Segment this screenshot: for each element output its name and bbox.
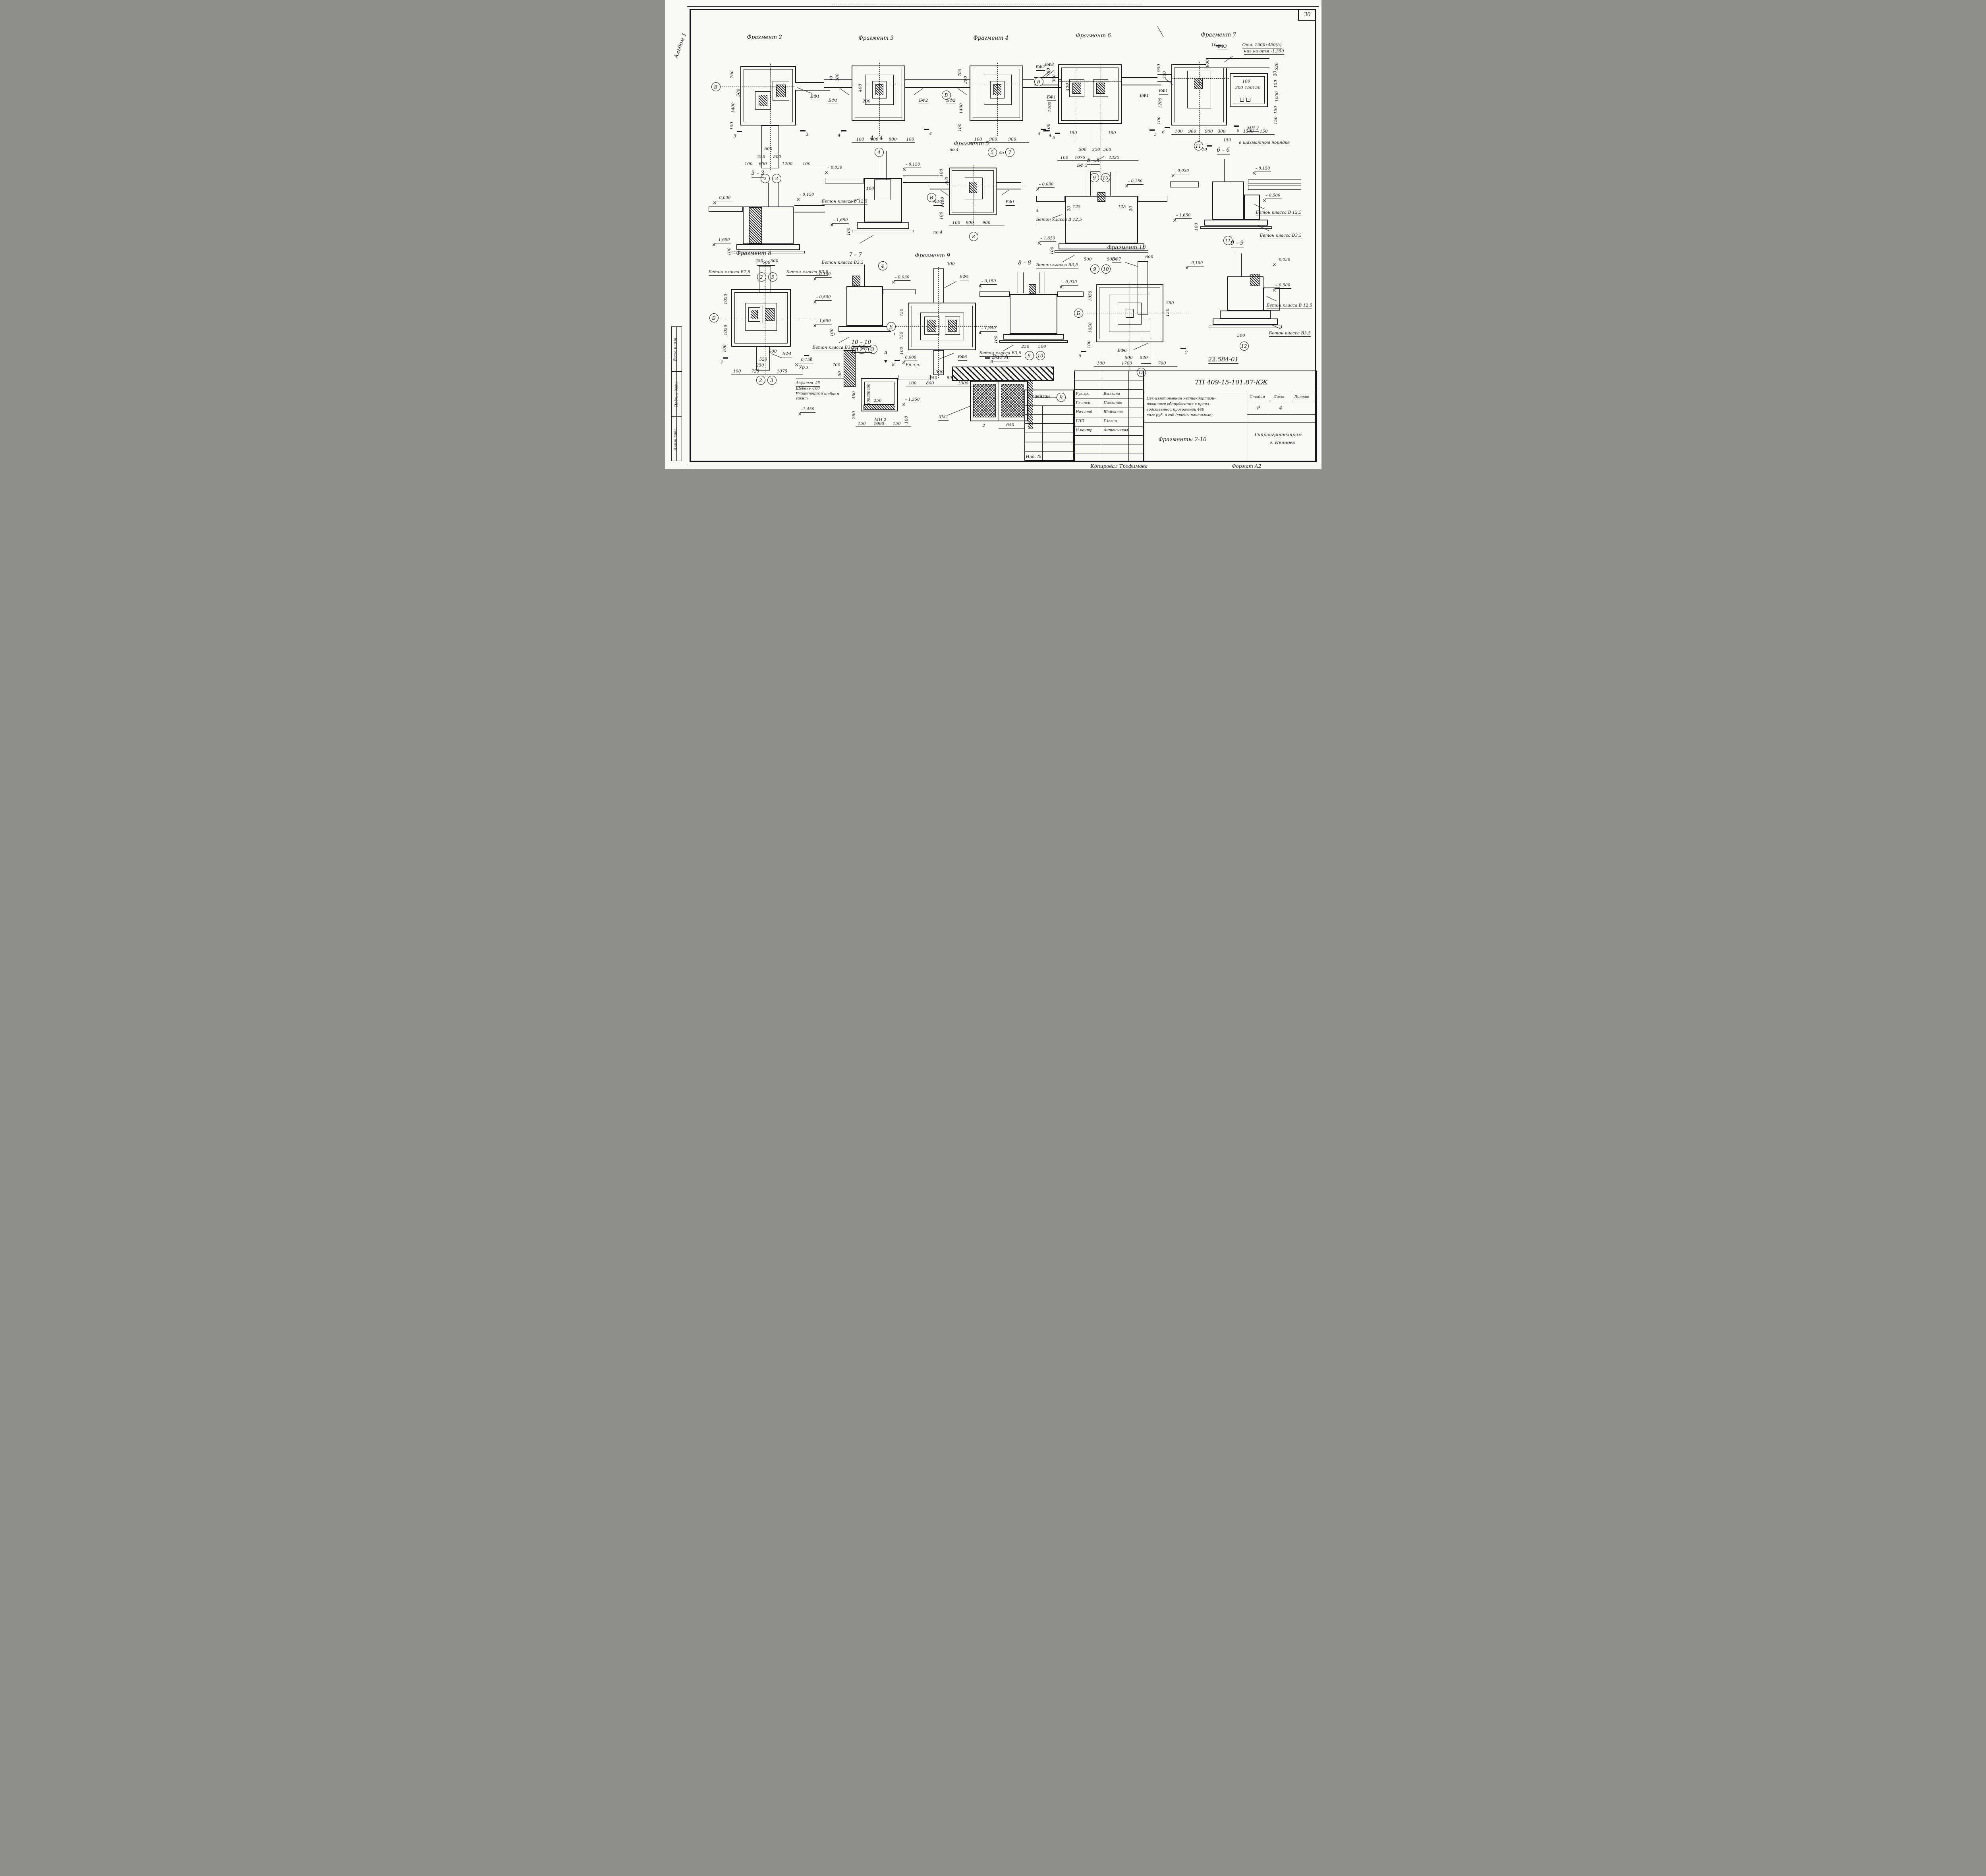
anchor-bolt	[1116, 172, 1116, 196]
cut-mark	[1055, 133, 1060, 134]
dim-label: 800	[926, 381, 934, 386]
element-label: БФ4	[782, 352, 792, 357]
dim-label: 1050	[1088, 291, 1093, 301]
element-label: БФ2	[947, 98, 956, 104]
dim-label: 1400	[941, 197, 945, 208]
fragment-title: Фрагмент 3	[859, 36, 894, 41]
dim-label: 1400	[959, 103, 964, 114]
leader-line	[771, 353, 781, 358]
grid-bubble: В	[711, 82, 721, 91]
grid-bubble: 2	[756, 376, 765, 385]
column-pocket	[1187, 71, 1211, 108]
dim-line	[757, 265, 775, 266]
dim-label: 1050	[1088, 322, 1093, 333]
fragment-title: Фрагмент 8	[736, 251, 771, 257]
dim-label: 20	[1067, 206, 1071, 211]
cut-label: 6	[1237, 129, 1240, 133]
dim-label: 500	[736, 89, 740, 97]
dim-label: 125	[1118, 205, 1126, 209]
dim-label: 500	[1038, 345, 1046, 349]
anchor-bolt	[1018, 272, 1018, 293]
wall-hatch	[749, 207, 762, 243]
elevation-mark: – 0,150	[1254, 167, 1271, 172]
signature-name: Шайхалов	[1104, 410, 1123, 415]
cut-mark	[1165, 127, 1170, 128]
dim-label: 250	[1166, 301, 1174, 305]
sheet-title: Фрагменты 2-10	[1159, 437, 1207, 443]
mesh-panel	[973, 384, 996, 417]
dim-label: 100	[803, 162, 811, 166]
drawing-sheet: 30 Альбом 1 Взам. инв.№ Подп. и дата Инв…	[665, 0, 1321, 469]
anchor-bolt	[1236, 253, 1236, 276]
signature-divider	[1128, 371, 1129, 462]
column-hatch	[751, 310, 758, 319]
element-label: БФ2	[919, 98, 928, 104]
fragment-5-view: Фрагмент 5 В БФ2 БФ1 100 300 1400 100 10…	[927, 140, 1028, 245]
floor-slab	[1248, 179, 1301, 183]
dim-line	[949, 226, 1005, 226]
dim-label: 100	[730, 122, 734, 130]
dim-label: 725	[752, 369, 759, 374]
cut-mark	[894, 360, 900, 361]
cut-mark	[737, 131, 742, 132]
dim-label: 100	[846, 228, 851, 235]
side-stamp-label: Взам. инв.№	[673, 338, 678, 361]
cut-label: 6	[1162, 130, 1165, 135]
view-arrow-line	[886, 355, 886, 360]
anchor-bolt	[1085, 172, 1085, 196]
pedestal	[846, 286, 883, 326]
dim-label: 300	[867, 391, 871, 398]
cut-label: 3	[806, 133, 809, 137]
elevation-mark: – 1,650	[1039, 237, 1057, 242]
cut-label: 4	[1036, 209, 1039, 213]
dim-line	[1094, 366, 1177, 367]
signature-rows	[1075, 371, 1143, 461]
element-label: БФ1	[1159, 89, 1168, 95]
elevation-mark: – 1,650	[714, 238, 731, 243]
dim-label: 150	[1069, 131, 1077, 135]
dim-label: 1000	[874, 422, 885, 426]
dim-label: 150	[1108, 131, 1116, 135]
view-title: Вид А	[992, 355, 1009, 361]
cut-mark	[841, 130, 846, 131]
dim-label: 700	[1046, 68, 1051, 76]
floor-slab	[1248, 185, 1301, 190]
cut-mark	[1234, 125, 1239, 127]
signature-name: Павлинов	[1104, 401, 1122, 405]
dim-label: 300	[947, 262, 955, 266]
title-block-line	[1293, 393, 1293, 414]
dim-label: 1700	[1122, 361, 1132, 366]
dim-label: 100	[866, 187, 874, 191]
grid-bubble: 12	[1240, 342, 1249, 351]
dim-line	[856, 427, 911, 427]
format-label: Формат А2	[1232, 464, 1262, 469]
elevation-mark: –1,450	[800, 407, 816, 413]
floor-slab	[1036, 196, 1065, 202]
dim-label: 100	[1046, 124, 1051, 131]
dim-label: 100	[939, 212, 943, 220]
section-title: 10 – 10	[852, 340, 871, 347]
leader-line	[1157, 26, 1163, 37]
stage-value: Р	[1257, 405, 1260, 410]
dim-label: 100	[909, 381, 917, 386]
dim-line	[1171, 134, 1275, 135]
layer-label: Щебень -100	[796, 387, 820, 392]
fragment-title: Фрагмент 4	[974, 36, 1008, 41]
signature-name: Глезин	[1104, 419, 1117, 424]
cut-mark	[1081, 351, 1086, 352]
bedding-layer	[835, 333, 895, 335]
dim-label: 300	[1052, 74, 1056, 82]
column-hatch	[875, 84, 883, 95]
material-label: Бетон класса В3,5	[1269, 331, 1311, 337]
title-block-line	[1144, 422, 1317, 423]
dim-label: 1400	[731, 102, 736, 113]
dim-label: 100	[745, 162, 753, 166]
section-title: 5 – 5	[1087, 158, 1100, 165]
elevation-mark: – 0,500	[815, 295, 832, 301]
dim-label: 100	[904, 416, 908, 424]
pedestal-step	[1244, 195, 1260, 220]
ground-line	[796, 378, 844, 378]
section-title: 3 – 3	[752, 171, 765, 178]
bedding-layer	[852, 230, 914, 232]
elevation-mark: – 1,650	[815, 319, 832, 324]
grid-bubble: Б	[709, 313, 719, 322]
dim-label: 150	[1273, 80, 1278, 88]
pit-bottom-hatch	[864, 405, 895, 410]
dim-label: 250	[929, 376, 937, 380]
elevation-mark: – 0,030	[1038, 183, 1055, 188]
dim-label: 1200	[782, 162, 793, 166]
fragment-title: Фрагмент 9	[915, 253, 950, 259]
column-pocket	[1126, 309, 1134, 318]
dim-label: 300	[1162, 71, 1167, 79]
dim-label: 100	[733, 369, 741, 374]
dim-label: 1000	[1275, 91, 1279, 102]
footing-slab	[857, 222, 909, 229]
title-block-line	[1144, 393, 1317, 393]
signature-role: Н.контр.	[1076, 428, 1094, 433]
dim-label: 300	[1235, 86, 1243, 90]
fragment-title: Фрагмент 7	[1201, 33, 1236, 38]
leader-line	[957, 88, 967, 95]
foundation-beam-bf3	[1206, 58, 1269, 68]
dim-label: 100	[994, 336, 998, 344]
wall-hatch	[844, 350, 856, 387]
column-above	[933, 268, 944, 303]
dim-label: 100	[899, 347, 904, 355]
leader-line	[1003, 345, 1013, 351]
leader-line	[940, 190, 948, 196]
inventory-label: Инв. №	[1026, 455, 1041, 459]
project-name-line: рованного оборудования с произ-	[1147, 402, 1210, 407]
material-label: Бетон класса В3,5	[1260, 234, 1302, 239]
dim-label: 650	[1007, 423, 1014, 427]
dim-label: 150	[1260, 129, 1268, 134]
embed-note: в шахматном порядке	[1239, 141, 1290, 146]
leader-line	[1124, 262, 1138, 266]
element-label: БФ1	[829, 98, 838, 104]
attached-label: Привязан	[1028, 394, 1050, 399]
elevation-mark: – 0,030	[1173, 169, 1190, 174]
project-name-line: водственной программой 440	[1147, 408, 1204, 412]
foundation-beam	[1122, 77, 1161, 85]
dim-label: 20	[1273, 71, 1277, 76]
signature-name: Антонычева	[1104, 428, 1128, 433]
cut-mark	[723, 357, 728, 359]
title-block-line	[1270, 393, 1270, 414]
signature-divider	[1102, 371, 1102, 462]
dim-label: 1050	[724, 294, 728, 305]
title-block: Привязан Инв. № Рук.гр. Вылгина Гл.спец …	[1024, 371, 1317, 462]
dim-label: 750	[899, 309, 904, 317]
sheets-label: Листов	[1294, 395, 1310, 400]
elevation-mark: – 0,150	[904, 163, 922, 168]
floor-slab	[825, 178, 864, 183]
dim-label: 300	[867, 398, 871, 405]
fragment-title: Фрагмент 5	[954, 141, 989, 147]
signature-role: Гл.спец	[1076, 401, 1091, 405]
floor-slab	[979, 291, 1010, 297]
element-label: БФ2	[1036, 65, 1045, 71]
column-hatch	[993, 84, 1001, 95]
organization-city: г. Иваново	[1270, 440, 1296, 445]
dim-label: 900	[1157, 64, 1161, 72]
element-label: БФ1	[811, 95, 820, 100]
leader-line	[944, 281, 956, 288]
hole-note: Отв. 1500х450(h)	[1242, 43, 1282, 48]
cut-mark	[1041, 129, 1046, 130]
cut-label: по 4	[933, 230, 943, 235]
elevation-mark: – 0,150	[980, 280, 997, 285]
side-stamp-label: Инв.№ подл.	[673, 427, 678, 451]
bedding-layer	[1209, 326, 1282, 328]
dim-label: 250	[1022, 345, 1030, 349]
anchor-bolt	[1023, 272, 1024, 293]
project-name-line: тыс.руб. в год (стены панельные)	[1147, 413, 1213, 418]
cut-label: 5	[1053, 136, 1055, 140]
top-edge-marks	[832, 4, 1142, 4]
wall-stub-hatch	[852, 276, 860, 286]
leader-line	[914, 88, 923, 95]
dim-label: 1400	[1048, 102, 1052, 112]
embed-plate	[1240, 98, 1244, 102]
dim-label: 150	[1223, 138, 1231, 143]
copied-by-label: Копировал Трофимова	[1091, 464, 1148, 469]
column-hatch	[1194, 78, 1203, 89]
dim-label: 150	[1165, 309, 1170, 317]
dim-label: 500	[773, 155, 781, 159]
pedestal	[1212, 181, 1244, 220]
elevation-mark: – 0,150	[1187, 261, 1204, 266]
dim-label: 300	[835, 73, 839, 81]
dim-label: 150	[1245, 86, 1253, 90]
element-label: БФ1	[1006, 200, 1015, 206]
element-label: БФ6	[1118, 349, 1127, 354]
dim-label: 700	[833, 363, 840, 367]
foundation-beam	[997, 182, 1021, 189]
cut-mark	[1207, 145, 1212, 147]
elevation-mark: – 0,150	[798, 193, 815, 198]
anchor-bolt	[1045, 272, 1045, 293]
dim-line	[1139, 260, 1158, 260]
organization-name: Гипроагротехпром	[1255, 432, 1302, 437]
dim-label: 600	[1205, 59, 1209, 67]
foundation-beam	[794, 205, 825, 212]
cut-label: 3	[734, 134, 736, 139]
element-label: БФ7	[1112, 257, 1121, 263]
dim-label: 100	[1097, 361, 1105, 366]
column-hatch	[927, 320, 936, 332]
pedestal	[1010, 294, 1057, 334]
column-hatch	[948, 320, 957, 332]
section-title: 8 – 8	[1018, 261, 1032, 267]
dim-label: 100	[1175, 129, 1183, 134]
elevation-mark: – 0,150	[797, 358, 814, 363]
anchor-bolt	[779, 183, 779, 207]
section-title: 9 – 9	[1231, 241, 1244, 247]
fragment-title: Фрагмент 6	[1076, 33, 1111, 39]
dim-label: 600	[1146, 255, 1153, 259]
section-title: 7 – 7	[849, 253, 862, 259]
title-block-line	[1247, 414, 1317, 415]
element-label: ЛМ1	[938, 415, 949, 421]
doc-number-note: 22.584-01	[1208, 357, 1239, 364]
elevation-mark: – 0,150	[815, 272, 832, 278]
dim-label: 500	[1237, 334, 1245, 338]
cut-label: 8	[892, 363, 895, 367]
section-9-9: 9 – 9 – 0,150 – 0,030 – 0,500 Бетон клас…	[1187, 241, 1308, 356]
dim-label: 200	[863, 99, 871, 104]
stage-label: Стадия	[1250, 395, 1265, 400]
footing-slab	[838, 326, 891, 332]
floor-slab	[1170, 181, 1199, 187]
dim-label: 150	[1273, 116, 1278, 124]
dim-label: 250	[757, 155, 765, 159]
elevation-mark: – 0,030	[1275, 258, 1292, 263]
material-label: Бетон класса В 12,5	[822, 199, 867, 205]
embed-plate	[1246, 98, 1250, 102]
bedding-layer	[999, 340, 1068, 343]
sheet-number: 30	[1304, 12, 1311, 18]
dim-label: 150	[1253, 86, 1261, 90]
dim-label: 520	[1274, 62, 1279, 70]
dim-label: 100	[1242, 79, 1250, 84]
fragment-7-view: Фрагмент 7 10 БФ3 Отв. 1500х450(h) низ н…	[1157, 26, 1318, 159]
column-hatch	[765, 308, 775, 321]
dim-label: 300	[945, 177, 949, 185]
mesh-panel	[1001, 384, 1024, 417]
element-label: БФ3	[1218, 44, 1227, 50]
cut-label: 5	[1154, 133, 1157, 137]
dim-label: 250	[852, 411, 856, 419]
foundation-beam	[905, 79, 943, 88]
dim-line	[938, 267, 956, 267]
bolt-pocket	[874, 179, 891, 200]
dim-label: 450	[867, 384, 871, 390]
dim-label: 100	[829, 328, 834, 336]
dim-label: 300	[1218, 129, 1226, 134]
column-hatch	[1072, 83, 1081, 94]
wall-stub-hatch	[1029, 284, 1036, 294]
dim-label: 600	[763, 261, 771, 265]
dim-label: 1075	[777, 369, 788, 374]
cut-mark	[1180, 348, 1186, 349]
column-hatch	[969, 182, 977, 193]
dim-line	[740, 167, 830, 167]
anchor-bolt	[1090, 172, 1091, 196]
section-title: 6 – 6	[1217, 148, 1230, 154]
column-hatch	[776, 85, 786, 97]
embed-label: МН 757-2	[851, 347, 872, 353]
dim-label: 900	[983, 221, 991, 225]
leader-line	[1001, 190, 1009, 195]
material-label: Бетон класса В 12,5	[1267, 303, 1312, 309]
dim-label: 150	[858, 422, 866, 426]
signature-role: ГИП	[1076, 419, 1085, 424]
dim-label: 150	[893, 422, 901, 426]
footing-slab	[1213, 318, 1278, 325]
dim-label: 700	[730, 70, 734, 78]
elevation-mark: – 1,650	[980, 326, 997, 332]
leader-line	[860, 235, 873, 243]
cut-label: 9	[1079, 354, 1082, 359]
dim-label: 100	[1194, 223, 1198, 231]
position-label: 2	[983, 424, 985, 428]
pedestal	[1227, 276, 1263, 311]
section-8-8: 8 – 8 – 0,150 – 0,030 – 1,650 100 Бетон …	[979, 261, 1085, 362]
floor-slab	[1138, 196, 1167, 202]
dim-label: 520	[759, 357, 767, 362]
grid-bubble: 8	[969, 232, 978, 241]
anchor-bolt	[1039, 272, 1039, 293]
dim-label: 600	[769, 349, 777, 354]
pedestal-step	[1220, 311, 1271, 318]
sheet-value: 4	[1279, 405, 1283, 410]
signature-role: Рук.гр.	[1076, 392, 1089, 396]
anchor-bolt	[880, 151, 880, 179]
leader-line	[839, 88, 849, 95]
dim-label: 500	[1079, 148, 1087, 152]
grid-bubble: 3	[767, 376, 777, 385]
title-block-line	[1247, 401, 1317, 401]
dim-label: 100	[952, 221, 960, 225]
title-block-line	[1247, 393, 1247, 462]
title-block-rows	[1025, 405, 1073, 461]
elevation-mark: – 1,650	[1175, 214, 1192, 219]
cut-label: 10	[1211, 43, 1217, 47]
dim-label: 750	[899, 332, 904, 340]
dim-label: 520	[1140, 356, 1148, 360]
dim-label: 500	[1125, 356, 1133, 360]
grid-bubble: Б	[887, 322, 896, 331]
anchor-bolt	[1230, 159, 1230, 182]
dim-label: 1200	[1158, 98, 1163, 108]
side-stamp: Взам. инв.№ Подп. и дата Инв.№ подл.	[671, 326, 682, 461]
side-stamp-label: Подп. и дата	[674, 382, 679, 407]
elevation-mark: – 1,350	[904, 398, 921, 403]
title-block-line	[1042, 405, 1043, 462]
column-hatch	[759, 95, 767, 106]
dim-label: 150	[1273, 106, 1278, 114]
dim-label: 50	[838, 371, 842, 376]
album-label: Альбом 1	[673, 32, 687, 59]
embed-label: МН 2	[1247, 126, 1259, 132]
element-label: БФ5	[960, 275, 969, 280]
